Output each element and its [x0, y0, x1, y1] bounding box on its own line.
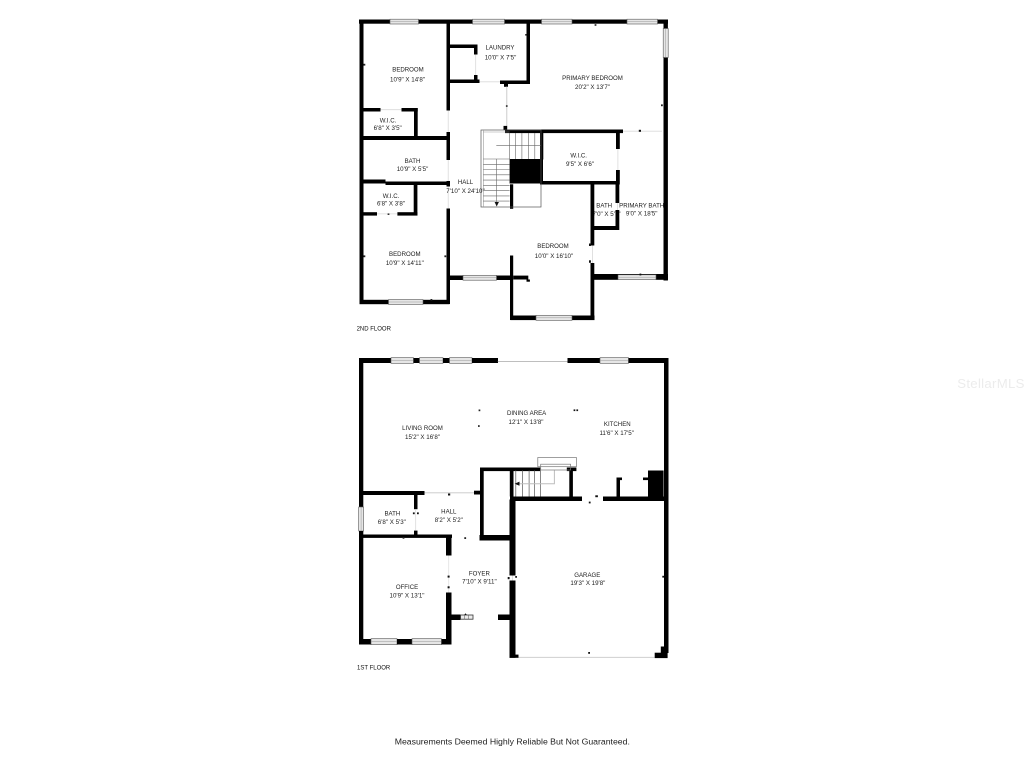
svg-text:BEDROOM: BEDROOM	[392, 67, 424, 74]
svg-text:10'9" X 5'5": 10'9" X 5'5"	[397, 166, 429, 173]
svg-text:GARAGE: GARAGE	[574, 572, 600, 579]
svg-text:19'3" X 19'8": 19'3" X 19'8"	[570, 580, 605, 587]
svg-text:6'8" X 5'3": 6'8" X 5'3"	[378, 519, 406, 526]
svg-text:10'0" X 16'10": 10'0" X 16'10"	[535, 253, 573, 260]
svg-text:12'1" X 13'8": 12'1" X 13'8"	[509, 419, 544, 426]
svg-text:HALL: HALL	[441, 508, 457, 515]
svg-text:6'8" X 3'5": 6'8" X 3'5"	[374, 125, 402, 132]
svg-text:PRIMARY BATH: PRIMARY BATH	[619, 202, 664, 209]
svg-text:BEDROOM: BEDROOM	[537, 243, 569, 250]
svg-text:BATH: BATH	[384, 511, 400, 518]
svg-text:1ST FLOOR: 1ST FLOOR	[357, 665, 391, 671]
svg-text:20'2" X 13'7": 20'2" X 13'7"	[575, 84, 610, 91]
svg-text:W.I.C.: W.I.C.	[383, 193, 400, 200]
svg-text:15'2" X 16'8": 15'2" X 16'8"	[405, 434, 440, 441]
svg-text:DINING AREA: DINING AREA	[507, 410, 547, 417]
svg-text:9'0" X 18'5": 9'0" X 18'5"	[626, 211, 658, 218]
svg-text:Measurements Deemed Highly Rel: Measurements Deemed Highly Reliable But …	[395, 737, 630, 747]
svg-text:W.I.C.: W.I.C.	[380, 117, 397, 124]
svg-text:BATH: BATH	[596, 203, 612, 210]
svg-text:OFFICE: OFFICE	[396, 584, 418, 591]
svg-text:11'6" X 17'5": 11'6" X 17'5"	[599, 430, 634, 437]
svg-text:FOYER: FOYER	[469, 570, 491, 577]
svg-text:StellarMLS: StellarMLS	[957, 376, 1024, 391]
svg-text:10'9" X 14'11": 10'9" X 14'11"	[386, 260, 424, 267]
svg-text:KITCHEN: KITCHEN	[604, 421, 631, 428]
svg-text:6'8" X 3'8": 6'8" X 3'8"	[377, 201, 405, 208]
svg-text:BATH: BATH	[405, 158, 421, 165]
svg-text:2ND FLOOR: 2ND FLOOR	[357, 327, 392, 333]
svg-text:10'9" X 14'8": 10'9" X 14'8"	[390, 76, 425, 83]
svg-text:8'2" X 5'2": 8'2" X 5'2"	[435, 517, 463, 524]
svg-text:7'10" X 24'10": 7'10" X 24'10"	[446, 188, 484, 195]
svg-text:HALL: HALL	[458, 179, 474, 186]
svg-text:W.I.C.: W.I.C.	[570, 153, 587, 160]
svg-text:PRIMARY BEDROOM: PRIMARY BEDROOM	[562, 75, 623, 82]
svg-text:LAUNDRY: LAUNDRY	[485, 44, 514, 51]
svg-text:LIVING ROOM: LIVING ROOM	[402, 425, 443, 432]
svg-text:7'10" X 9'11": 7'10" X 9'11"	[462, 579, 497, 586]
svg-text:BEDROOM: BEDROOM	[389, 251, 421, 258]
svg-text:10'9" X 13'1": 10'9" X 13'1"	[390, 592, 425, 599]
svg-text:9'5" X 6'6": 9'5" X 6'6"	[566, 161, 594, 168]
svg-text:10'0" X 7'5": 10'0" X 7'5"	[485, 54, 517, 61]
